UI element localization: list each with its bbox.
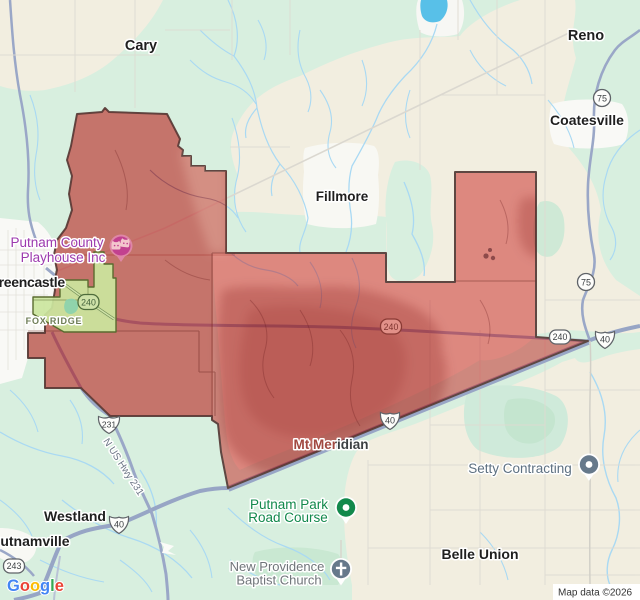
svg-text:40: 40: [600, 335, 610, 345]
svg-text:Baptist Church: Baptist Church: [236, 573, 321, 588]
svg-text:Reno: Reno: [568, 28, 604, 44]
svg-text:40: 40: [114, 520, 124, 530]
svg-text:Westland: Westland: [44, 508, 106, 524]
svg-text:231: 231: [102, 420, 116, 430]
svg-text:240: 240: [81, 298, 96, 308]
svg-text:Belle Union: Belle Union: [441, 546, 518, 562]
svg-text:FOX RIDGE: FOX RIDGE: [26, 316, 83, 326]
svg-text:Cary: Cary: [125, 38, 157, 54]
svg-text:75: 75: [597, 94, 607, 104]
svg-text:Mt Meridian: Mt Meridian: [293, 437, 368, 452]
svg-text:Greencastle: Greencastle: [0, 274, 65, 290]
svg-text:40: 40: [385, 416, 395, 426]
svg-text:Putnam County: Putnam County: [10, 235, 103, 250]
svg-text:Map data ©2026: Map data ©2026: [558, 588, 633, 599]
svg-text:243: 243: [7, 561, 22, 571]
svg-text:240: 240: [553, 332, 568, 342]
svg-text:240: 240: [384, 322, 399, 332]
svg-text:Setty Contracting: Setty Contracting: [468, 461, 572, 476]
svg-text:Playhouse Inc: Playhouse Inc: [21, 250, 106, 265]
svg-text:Road Course: Road Course: [248, 510, 328, 525]
svg-text:Google: Google: [7, 577, 64, 595]
svg-text:Coatesville: Coatesville: [550, 112, 624, 128]
svg-text:Fillmore: Fillmore: [316, 189, 369, 204]
svg-text:Putnamville: Putnamville: [0, 533, 70, 549]
svg-text:75: 75: [581, 278, 591, 288]
